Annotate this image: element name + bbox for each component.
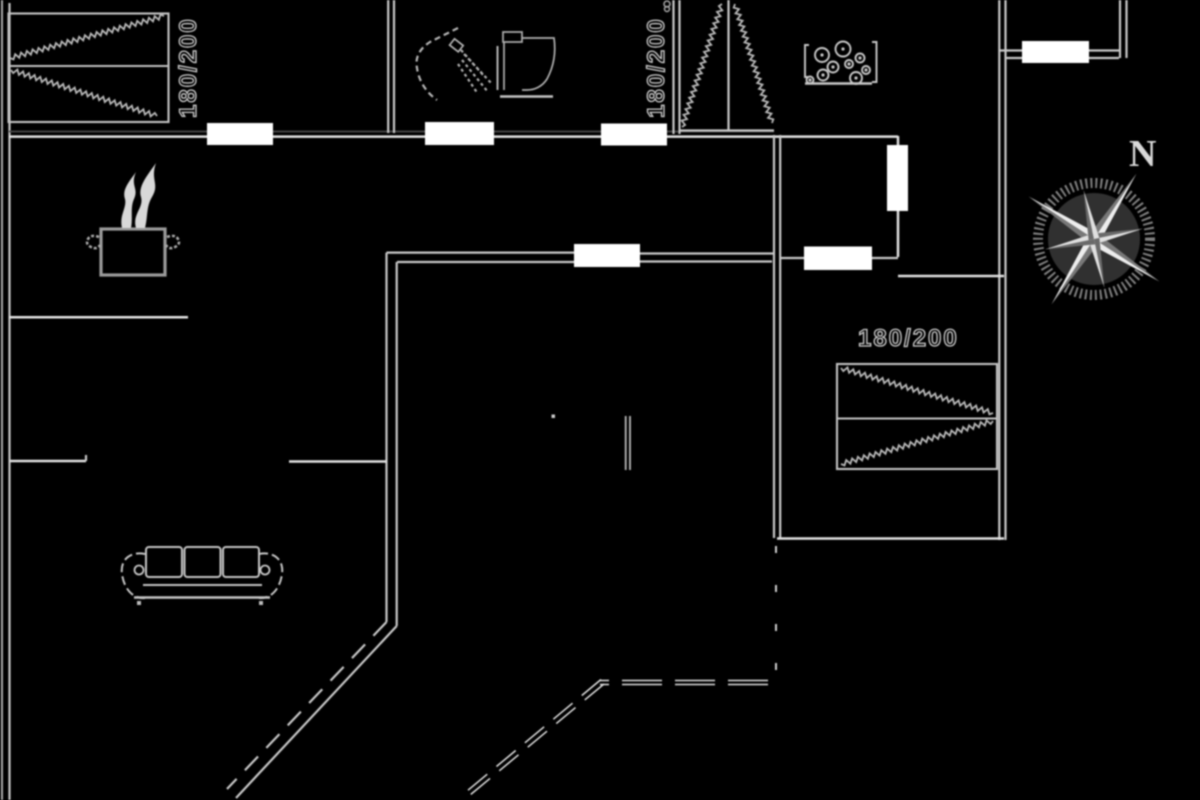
- svg-text:180/200: 180/200: [858, 325, 959, 352]
- svg-text:180/200: 180/200: [643, 17, 670, 118]
- svg-text:180/200: 180/200: [175, 17, 202, 118]
- svg-text:N: N: [1129, 133, 1156, 175]
